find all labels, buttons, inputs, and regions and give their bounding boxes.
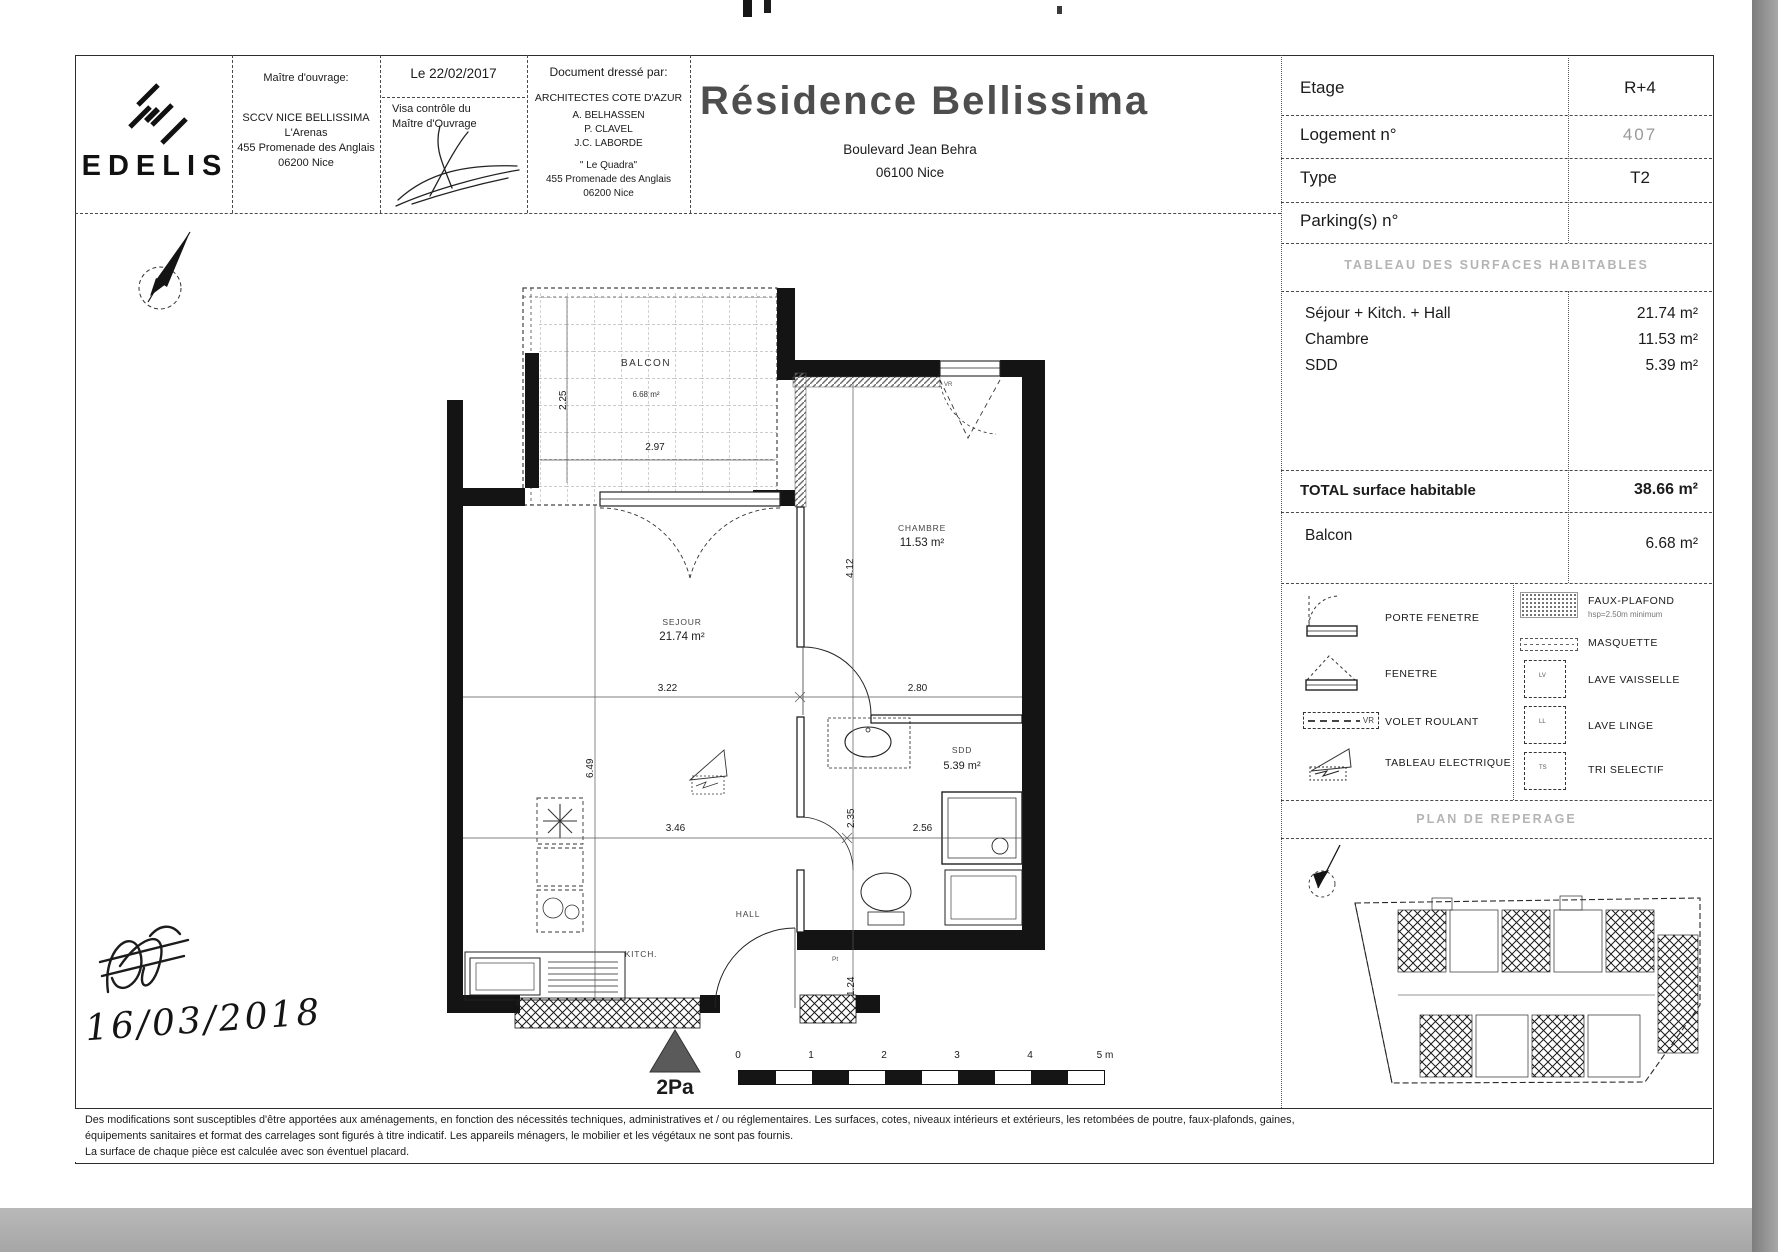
scanned-floorplan-page: { "header": { "logo_text": "EDELIS", "ow… [0, 0, 1778, 1252]
scale-tick-2: 2 [872, 1050, 896, 1062]
dim-sejour-width: 3.22 [640, 683, 695, 695]
dim-sdd-height: 2.35 [846, 809, 858, 828]
chambre-room-area: 11.53 m² [878, 537, 966, 550]
dim-balcon-width: 2.97 [625, 442, 685, 454]
kitchen-counter [465, 952, 625, 1000]
dim-kitchen-width: 3.46 [648, 823, 703, 835]
pt-tag: Pt [832, 956, 838, 963]
disclaimer-line-1: Des modifications sont susceptibles d'êt… [85, 1114, 1295, 1126]
disclaimer-line-2: équipements sanitaires et format des car… [85, 1130, 793, 1142]
sdd-room-area: 5.39 m² [932, 760, 992, 773]
scale-tick-4: 4 [1018, 1050, 1042, 1062]
disclaimer-line-3: La surface de chaque pièce est calculée … [85, 1146, 409, 1158]
north-compass-icon [139, 232, 190, 309]
fridge-snowflake-icon [543, 804, 577, 838]
edelis-logo-icon [100, 75, 210, 150]
tableau-electrique-plan-icon [690, 750, 727, 794]
scale-bar [738, 1070, 1105, 1085]
scale-tick-0: 0 [726, 1050, 750, 1062]
partitions [797, 507, 1022, 932]
dim-entry-height: 1.24 [846, 977, 858, 996]
chambre-window-vr [940, 361, 1000, 438]
balcon-room-area: 6.68 m² [600, 390, 692, 399]
dim-balcon-height: 2.25 [558, 391, 570, 410]
entry-marker-label: 2Pa [645, 1076, 705, 1100]
kitch-room-label: KITCH. [618, 950, 664, 960]
plan-graphics [0, 0, 1778, 1252]
balcon-room-label: BALCON [600, 358, 692, 370]
hatched-walls [793, 373, 940, 507]
sejour-room-area: 21.74 m² [638, 631, 726, 644]
site-compass-icon [1309, 845, 1340, 897]
threshold-mats [515, 995, 856, 1028]
sejour-french-door [600, 492, 780, 578]
entry-marker-triangle [650, 1030, 700, 1072]
disclaimer-box: Des modifications sont susceptibles d'êt… [75, 1108, 1712, 1162]
signature-scribble [100, 927, 188, 992]
chambre-room-label: CHAMBRE [878, 524, 966, 534]
scale-tick-3: 3 [945, 1050, 969, 1062]
dim-chambre-width: 2.80 [890, 683, 945, 695]
vr-tag: VR [944, 382, 952, 389]
hall-room-label: HALL [725, 910, 771, 920]
visa-signature [396, 126, 519, 206]
dim-sdd-width: 2.56 [895, 823, 950, 835]
dim-sejour-height: 6.49 [585, 759, 597, 778]
scale-tick-1: 1 [799, 1050, 823, 1062]
dim-chambre-height: 4.12 [845, 559, 857, 578]
scale-tick-5: 5 m [1088, 1050, 1122, 1062]
sejour-room-label: SEJOUR [638, 618, 726, 628]
site-plan [1355, 896, 1700, 1083]
sdd-room-label: SDD [932, 746, 992, 756]
